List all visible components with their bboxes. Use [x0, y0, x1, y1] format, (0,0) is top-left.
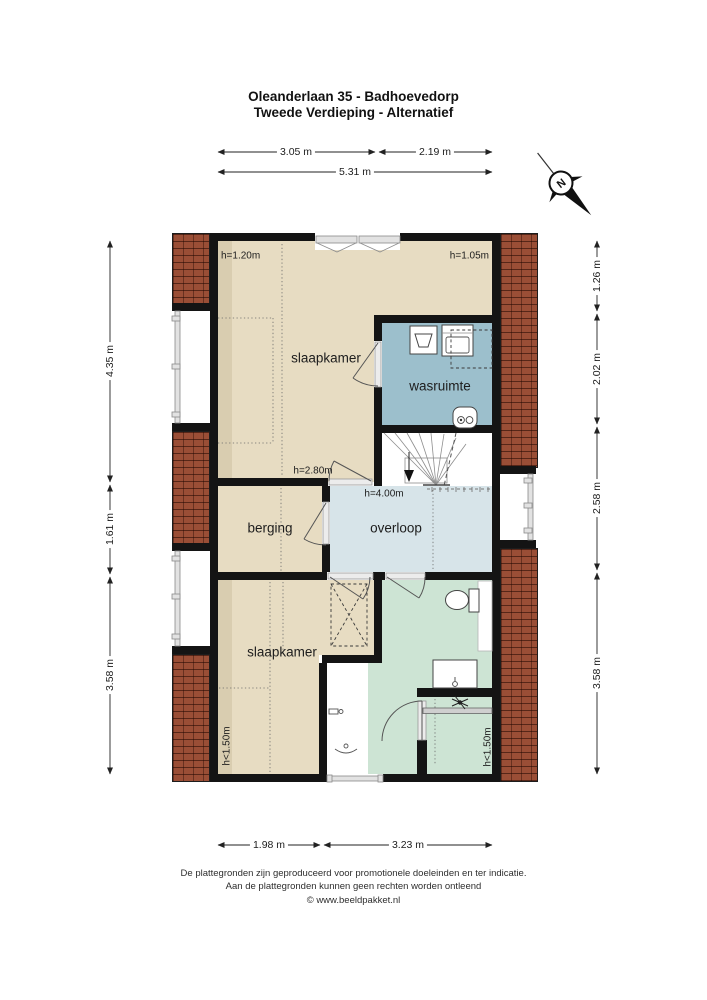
wall: [322, 486, 330, 502]
wall: [172, 423, 218, 431]
wall: [400, 233, 500, 241]
wall: [492, 241, 500, 782]
height-label: h<1.50m: [222, 726, 233, 765]
height-label: h=1.20m: [221, 251, 260, 262]
wall: [374, 315, 492, 323]
roof-strip: [500, 233, 538, 468]
dimension-label: 1.61 m: [104, 510, 116, 548]
height-label: h<1.50m: [483, 727, 494, 766]
footer-line-1: De plattegronden zijn geproduceerd voor …: [0, 867, 707, 880]
wall: [172, 543, 218, 551]
title-line-1: Oleanderlaan 35 - Badhoevedorp: [0, 89, 707, 105]
window-bottom: [327, 774, 383, 783]
roof-strip: [500, 548, 538, 782]
dimension-label: 3.58 m: [104, 656, 116, 694]
dimension-label: 2.02 m: [591, 350, 603, 388]
wall: [322, 544, 330, 572]
wall: [383, 774, 500, 782]
stairwell: [382, 433, 492, 486]
roof-strip: [172, 233, 210, 307]
compass-icon: N: [521, 140, 605, 230]
wall: [373, 572, 385, 580]
page-title: Oleanderlaan 35 - Badhoevedorp Tweede Ve…: [0, 89, 707, 121]
height-label: h=1.05m: [450, 251, 489, 262]
dimension-label: 5.31 m: [336, 166, 374, 178]
roof-strip: [172, 431, 210, 545]
window: [502, 474, 536, 540]
wall: [417, 740, 427, 774]
height-label: h=4.00m: [364, 489, 403, 500]
wall: [417, 688, 492, 697]
wall: [492, 540, 536, 548]
footer-line-2: Aan de plattegronden kunnen geen rechten…: [0, 880, 707, 893]
wall: [210, 774, 327, 782]
title-line-2: Tweede Verdieping - Alternatief: [0, 105, 707, 121]
dimension-label: 3.23 m: [389, 839, 427, 851]
dimension-label: 3.05 m: [277, 146, 315, 158]
dimension-label: 1.26 m: [591, 257, 603, 295]
dimension-label: 2.19 m: [416, 146, 454, 158]
wall: [210, 241, 218, 782]
room-slaapkamer-bottom: [218, 580, 319, 774]
footer-disclaimer: De plattegronden zijn geproduceerd voor …: [0, 867, 707, 907]
low-ceiling-strip: [218, 241, 232, 478]
room-label-slaapkamer-bottom: slaapkamer: [247, 645, 317, 660]
room-label-wasruimte: wasruimte: [409, 379, 471, 394]
window: [172, 311, 210, 423]
room-label-slaapkamer-top: slaapkamer: [291, 351, 361, 366]
room-label-overloop: overloop: [370, 521, 422, 536]
wall: [172, 303, 218, 311]
height-label: h=2.80m: [293, 466, 332, 477]
dimension-label: 1.98 m: [250, 839, 288, 851]
bath-niche: [327, 663, 368, 774]
wall: [172, 646, 218, 654]
wall: [374, 323, 382, 341]
wall: [322, 655, 382, 663]
wall: [425, 572, 492, 580]
dimension-label: 4.35 m: [104, 342, 116, 380]
wall: [210, 478, 328, 486]
room-badkamer: [368, 655, 492, 774]
wall: [374, 387, 382, 486]
dimension-label: 2.58 m: [591, 479, 603, 517]
floorplan-page: Oleanderlaan 35 - Badhoevedorp Tweede Ve…: [0, 0, 707, 1000]
wall: [374, 580, 382, 655]
room-label-berging: berging: [247, 521, 292, 536]
room-wasruimte: [382, 323, 492, 425]
wall: [210, 233, 315, 241]
roof-strip: [172, 654, 210, 782]
wall: [492, 466, 536, 474]
window: [172, 551, 210, 646]
compass-north-label: N: [555, 177, 569, 191]
wall: [382, 425, 492, 433]
wall: [319, 663, 327, 774]
wall: [210, 572, 327, 580]
dimension-label: 3.58 m: [591, 654, 603, 692]
footer-line-3: © www.beeldpakket.nl: [0, 894, 707, 907]
